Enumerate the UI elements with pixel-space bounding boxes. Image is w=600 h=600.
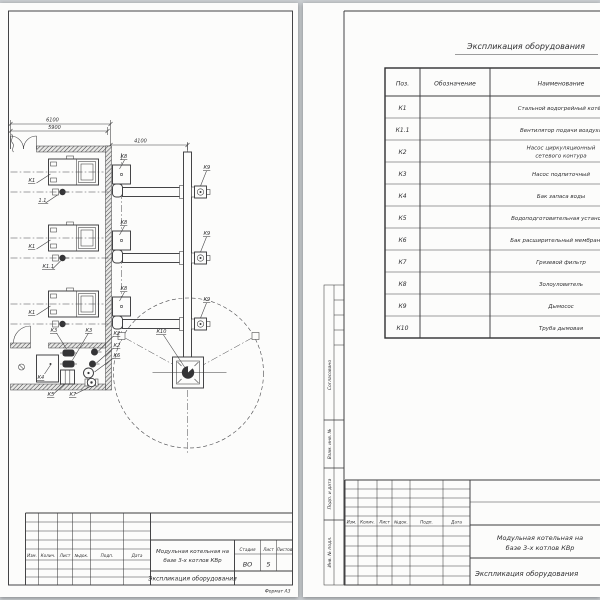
tb2-col-izm: Изм. xyxy=(347,520,357,525)
equipment-label-К7: К7 xyxy=(70,392,78,398)
project-name2-line1: Модульная котельная на xyxy=(497,534,583,542)
entrance-double-door xyxy=(11,136,37,149)
spec-table: Поз. Обозначение Наименование К1Стальной… xyxy=(385,68,600,338)
guy-anchor-right xyxy=(252,333,259,340)
equipment-label-К8: К8 xyxy=(121,286,128,292)
project-name-line2: базе 3-х котлов КВр xyxy=(163,558,222,564)
tb-col-list: Лист xyxy=(59,553,71,558)
spec-row-pos: К2 xyxy=(398,149,406,156)
tb-col-data: Дата xyxy=(131,553,143,558)
spec-row-pos: К7 xyxy=(398,259,406,266)
spec-table-rows: К1Стальной водогрейный котёлК1.1Вентилят… xyxy=(385,105,600,332)
tb2-col-ndok: №док. xyxy=(393,520,408,525)
spec-row-name: Грязевой фильтр xyxy=(536,260,586,266)
water-treatment-unit-k5 xyxy=(61,370,75,384)
boiler-2 xyxy=(11,222,104,261)
stage-label: Стадия xyxy=(239,547,256,552)
wall-break-mark xyxy=(12,134,14,152)
spec-row-pos: К4 xyxy=(398,193,406,200)
sheet-left-plan: 6100 5900 4100 xyxy=(0,3,298,597)
sheet-right-specification: Согласовано Взам. инв. № Подп. и дата Ин… xyxy=(303,3,600,597)
spec-row-pos: К8 xyxy=(398,281,406,288)
inner-door xyxy=(14,326,31,343)
doc-title-right: Экспликация оборудования xyxy=(474,570,578,578)
equipment-label-К6: К6 xyxy=(114,353,121,359)
project-name2-line2: базе 3-х котлов КВр xyxy=(506,544,575,552)
spec-row-name: Водоподготовительная установка xyxy=(511,216,600,222)
equipment-label-К1.1: К1.1 xyxy=(43,264,55,270)
equipment-label-К1: К1 xyxy=(29,178,36,184)
spec-row-pos: К10 xyxy=(397,325,409,332)
spec-title: Экспликация оборудования xyxy=(466,42,585,51)
equipment-label-К8: К8 xyxy=(121,154,128,160)
spec-col-pos: Поз. xyxy=(396,81,409,88)
format-note: Формат А3 xyxy=(265,589,291,595)
spec-row-name: сетевого контура xyxy=(535,154,587,160)
equipment-label-К2: К2 xyxy=(114,343,121,349)
equipment-label-К4: К4 xyxy=(38,375,45,381)
spec-row-name: Насос подпиточный xyxy=(532,172,590,178)
stamp-podp-data: Подп. и дата xyxy=(327,478,333,509)
title-block-right: Изм. Колич. Лист №док. Подп. Дата Модуль… xyxy=(345,480,600,585)
spec-row-name: Бак расширительный мембранный xyxy=(510,238,600,244)
dim-5900: 5900 xyxy=(48,125,61,131)
cad-drawing-viewer: 6100 5900 4100 xyxy=(0,0,600,600)
tb2-col-list: Лист xyxy=(378,520,390,525)
spec-col-name: Наименование xyxy=(538,81,585,88)
tb-col-ndok: №док. xyxy=(74,553,89,558)
equipment-label-К1: К1 xyxy=(29,310,36,316)
equipment-label-1.1: 1.1 xyxy=(39,198,47,204)
spec-row-pos: К1 xyxy=(398,105,406,112)
stamp-vzam-inv: Взам. инв. № xyxy=(327,428,333,459)
spec-row-name: Бак запаса воды xyxy=(537,194,586,200)
plan-drawing-svg: 6100 5900 4100 xyxy=(0,3,298,597)
flue-collector-duct xyxy=(184,152,192,357)
tb-col-podp: Подп. xyxy=(101,553,114,558)
equipment-label-К9: К9 xyxy=(204,297,211,303)
tb2-col-kolich: Колич. xyxy=(360,520,375,525)
spec-row-pos: К1.1 xyxy=(396,127,410,134)
spec-row-name: Вентилятор подачи воздуха xyxy=(520,128,600,134)
expansion-tank-k6 xyxy=(84,368,94,378)
dim-6100: 6100 xyxy=(46,118,59,124)
title-block-left: Изм. Колич. Лист №док. Подп. Дата Стадия… xyxy=(26,513,293,595)
tb2-col-data: Дата xyxy=(450,520,462,525)
pump-room-equipment xyxy=(19,349,102,387)
specification-svg: Согласовано Взам. инв. № Подп. и дата Ин… xyxy=(303,3,600,597)
dim-4100: 4100 xyxy=(134,139,147,145)
smoke-exhauster-2 xyxy=(192,252,211,264)
makeup-pumps-k3 xyxy=(60,350,77,368)
spec-row-name: Насос циркуляционный xyxy=(527,146,596,152)
sheet-number: 5 xyxy=(266,561,270,569)
spec-row-name: Дымосос xyxy=(547,304,574,310)
smoke-exhauster-3 xyxy=(192,318,211,330)
spec-row-name: Стальной водогрейный котёл xyxy=(518,106,600,112)
stamp-soglasovano: Согласовано xyxy=(327,360,333,390)
spec-row-name: Труба дымовая xyxy=(539,326,584,332)
equipment-label-К10: К10 xyxy=(157,329,167,335)
tb2-col-podp: Подп. xyxy=(420,520,433,525)
stamp-inv-podl: Инв. № подл. xyxy=(327,536,333,567)
mud-filter-k7 xyxy=(85,378,98,386)
tb-col-izm: Изм. xyxy=(27,553,37,558)
spec-row-pos: К6 xyxy=(398,237,406,244)
equipment-label-К3: К3 xyxy=(86,328,93,334)
spec-row-name: Золоуловитель xyxy=(539,282,583,288)
stage-value: ВО xyxy=(243,561,253,569)
sheets-label: Листов xyxy=(276,547,293,552)
sheet-label: Лист xyxy=(262,547,274,552)
equipment-label-К5: К5 xyxy=(48,392,55,398)
smoke-exhauster-1 xyxy=(192,186,211,198)
tb-col-kolich: Колич. xyxy=(41,553,56,558)
equipment-label-К2: К2 xyxy=(114,331,121,337)
spec-row-pos: К5 xyxy=(398,215,406,222)
side-stamp: Согласовано Взам. инв. № Подп. и дата Ин… xyxy=(324,285,344,585)
circulation-pumps-k2 xyxy=(89,349,102,368)
equipment-label-К9: К9 xyxy=(204,165,211,171)
equipment-label-К8: К8 xyxy=(121,220,128,226)
doc-title-left: Экспликация оборудования xyxy=(147,576,237,583)
spec-row-pos: К9 xyxy=(398,303,406,310)
plan-drawing: 6100 5900 4100 xyxy=(9,118,264,454)
equipment-label-К1: К1 xyxy=(29,244,36,250)
equipment-label-К3: К3 xyxy=(51,328,58,334)
project-name-line1: Модульная котельная на xyxy=(156,549,230,555)
boiler-1 xyxy=(11,156,104,195)
equipment-label-К9: К9 xyxy=(204,231,211,237)
spec-col-designation: Обозначение xyxy=(434,81,476,88)
spec-row-pos: К3 xyxy=(398,171,406,178)
boiler-3 xyxy=(11,288,104,327)
